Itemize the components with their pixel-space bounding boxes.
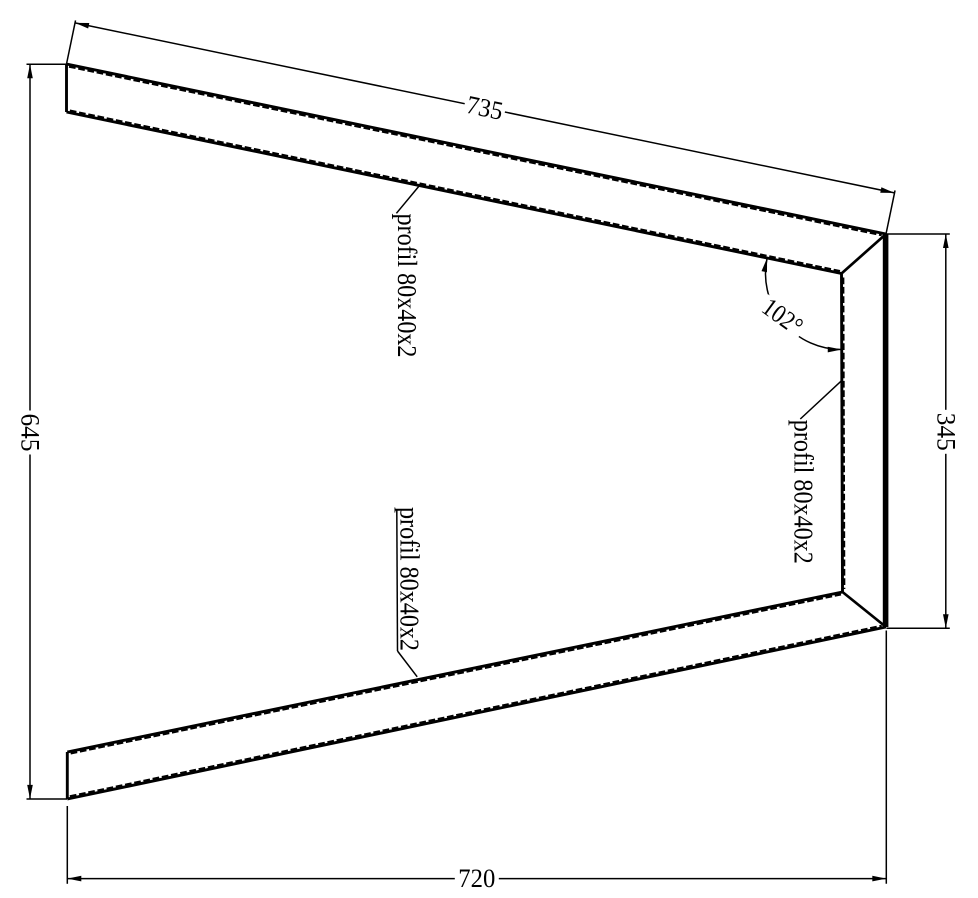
svg-text:profil 80x40x2: profil 80x40x2: [392, 214, 422, 358]
svg-text:345: 345: [931, 413, 960, 451]
svg-text:profil 80x40x2: profil 80x40x2: [394, 507, 424, 651]
svg-text:720: 720: [458, 864, 495, 893]
svg-text:profil 80x40x2: profil 80x40x2: [788, 420, 818, 564]
svg-text:645: 645: [16, 414, 45, 452]
